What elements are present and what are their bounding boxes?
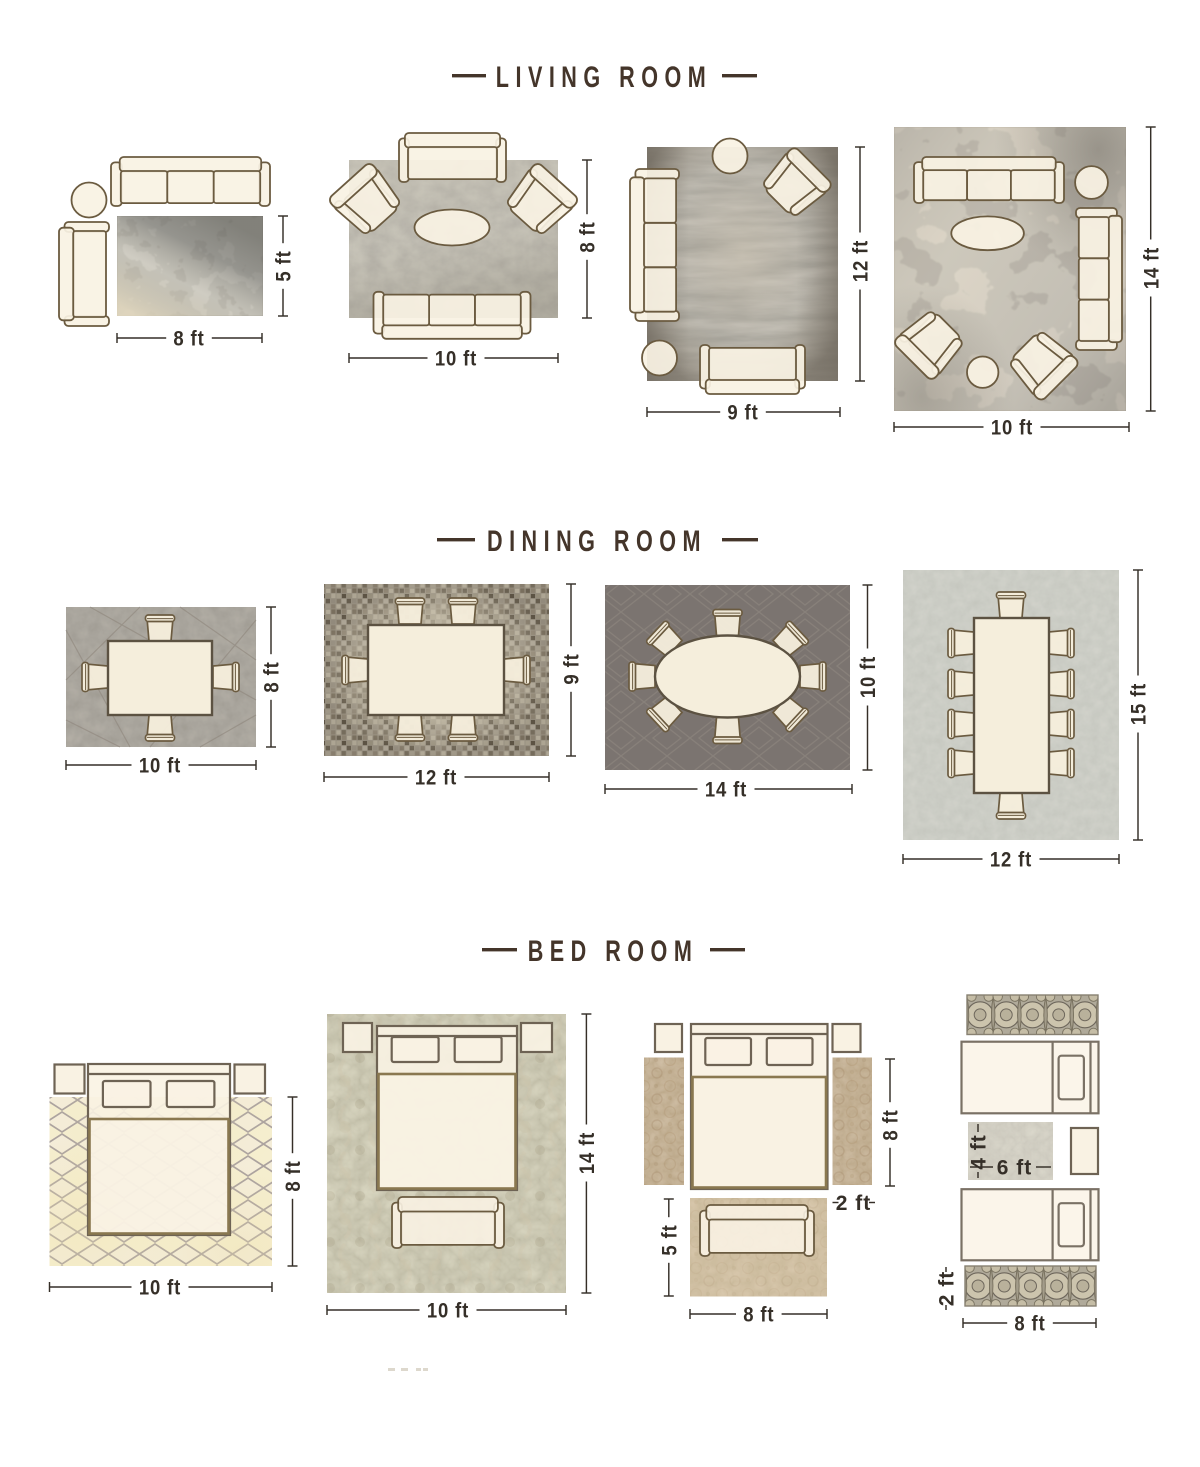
svg-text:8 ft: 8 ft xyxy=(1014,1313,1045,1336)
svg-text:8 ft: 8 ft xyxy=(880,1109,903,1140)
svg-text:10 ft: 10 ft xyxy=(857,656,880,698)
svg-text:8 ft: 8 ft xyxy=(282,1160,305,1191)
svg-text:5 ft: 5 ft xyxy=(273,250,296,281)
svg-text:10 ft: 10 ft xyxy=(427,1300,469,1323)
svg-text:14 ft: 14 ft xyxy=(576,1132,599,1174)
svg-text:10 ft: 10 ft xyxy=(991,417,1033,440)
svg-text:8 ft: 8 ft xyxy=(577,221,600,252)
svg-text:5 ft: 5 ft xyxy=(658,1224,681,1255)
svg-text:8 ft: 8 ft xyxy=(743,1304,774,1327)
svg-text:12 ft: 12 ft xyxy=(990,849,1032,872)
svg-text:10 ft: 10 ft xyxy=(139,755,181,778)
svg-text:14 ft: 14 ft xyxy=(705,779,747,802)
svg-text:2 ft: 2 ft xyxy=(936,1271,959,1307)
svg-text:9 ft: 9 ft xyxy=(561,653,584,684)
svg-text:15 ft: 15 ft xyxy=(1128,683,1151,725)
svg-text:8 ft: 8 ft xyxy=(173,328,204,351)
svg-text:BED ROOM: BED ROOM xyxy=(528,933,699,967)
svg-text:DINING ROOM: DINING ROOM xyxy=(487,523,707,557)
svg-text:10 ft: 10 ft xyxy=(435,348,477,371)
svg-text:4 ft: 4 ft xyxy=(968,1134,991,1170)
svg-text:12 ft: 12 ft xyxy=(415,767,457,790)
svg-text:2 ft: 2 ft xyxy=(836,1192,872,1215)
svg-text:6 ft: 6 ft xyxy=(997,1157,1033,1180)
svg-text:14 ft: 14 ft xyxy=(1140,247,1163,289)
svg-text:8 ft: 8 ft xyxy=(261,661,284,692)
svg-text:LIVING ROOM: LIVING ROOM xyxy=(496,59,712,93)
svg-text:9 ft: 9 ft xyxy=(727,402,758,425)
svg-text:12 ft: 12 ft xyxy=(850,240,873,282)
svg-text:10 ft: 10 ft xyxy=(139,1277,181,1300)
